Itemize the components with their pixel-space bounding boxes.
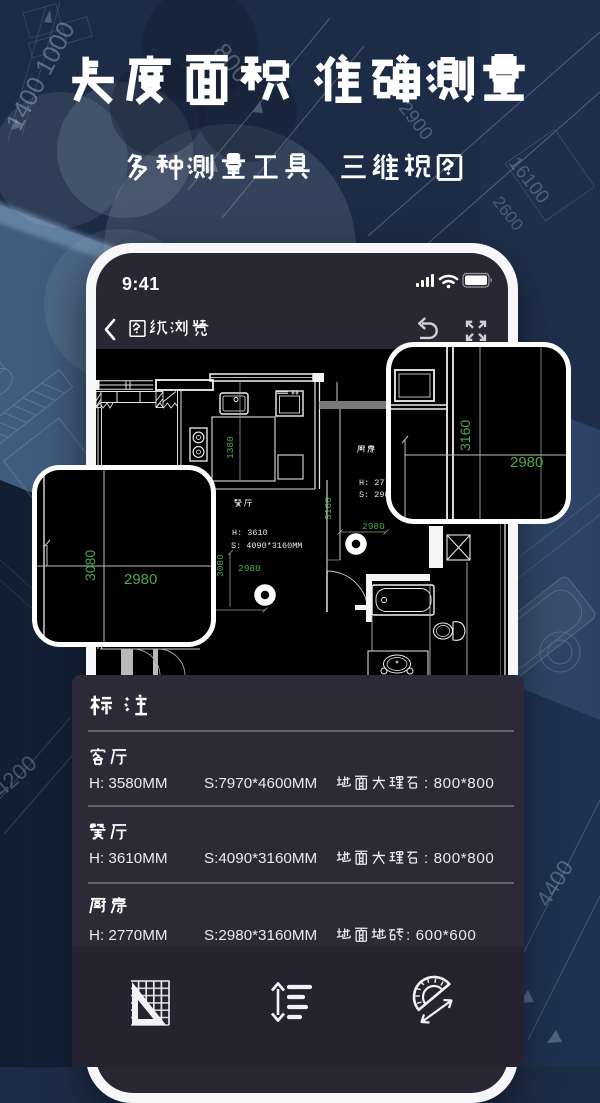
svg-text:: 600*600: : 600*600	[406, 927, 476, 944]
svg-text:2980: 2980	[124, 571, 157, 588]
svg-text:S:7970*4600MM: S:7970*4600MM	[204, 775, 317, 792]
svg-text:3080: 3080	[82, 550, 98, 581]
svg-text:: 800*800: : 800*800	[424, 850, 494, 867]
svg-text:S:2980*3160MM: S:2980*3160MM	[204, 927, 317, 944]
svg-text:3080: 3080	[215, 554, 226, 577]
svg-text:2980: 2980	[510, 454, 543, 471]
svg-text:3160: 3160	[457, 420, 473, 451]
svg-text:1380: 1380	[225, 436, 236, 459]
svg-text:H: 2770MM: H: 2770MM	[89, 927, 168, 944]
svg-text:H: 3610: H: 3610	[232, 528, 268, 538]
svg-text:3160: 3160	[323, 497, 334, 520]
svg-text:H: 3580MM: H: 3580MM	[89, 775, 168, 792]
svg-text:S: 4090*3160MM: S: 4090*3160MM	[231, 541, 302, 551]
svg-text:: 800*800: : 800*800	[424, 775, 494, 792]
svg-text:S:4090*3160MM: S:4090*3160MM	[204, 850, 317, 867]
svg-text:H: 3610MM: H: 3610MM	[89, 850, 168, 867]
svg-text:2980: 2980	[362, 521, 385, 532]
svg-text:2980: 2980	[238, 563, 261, 574]
